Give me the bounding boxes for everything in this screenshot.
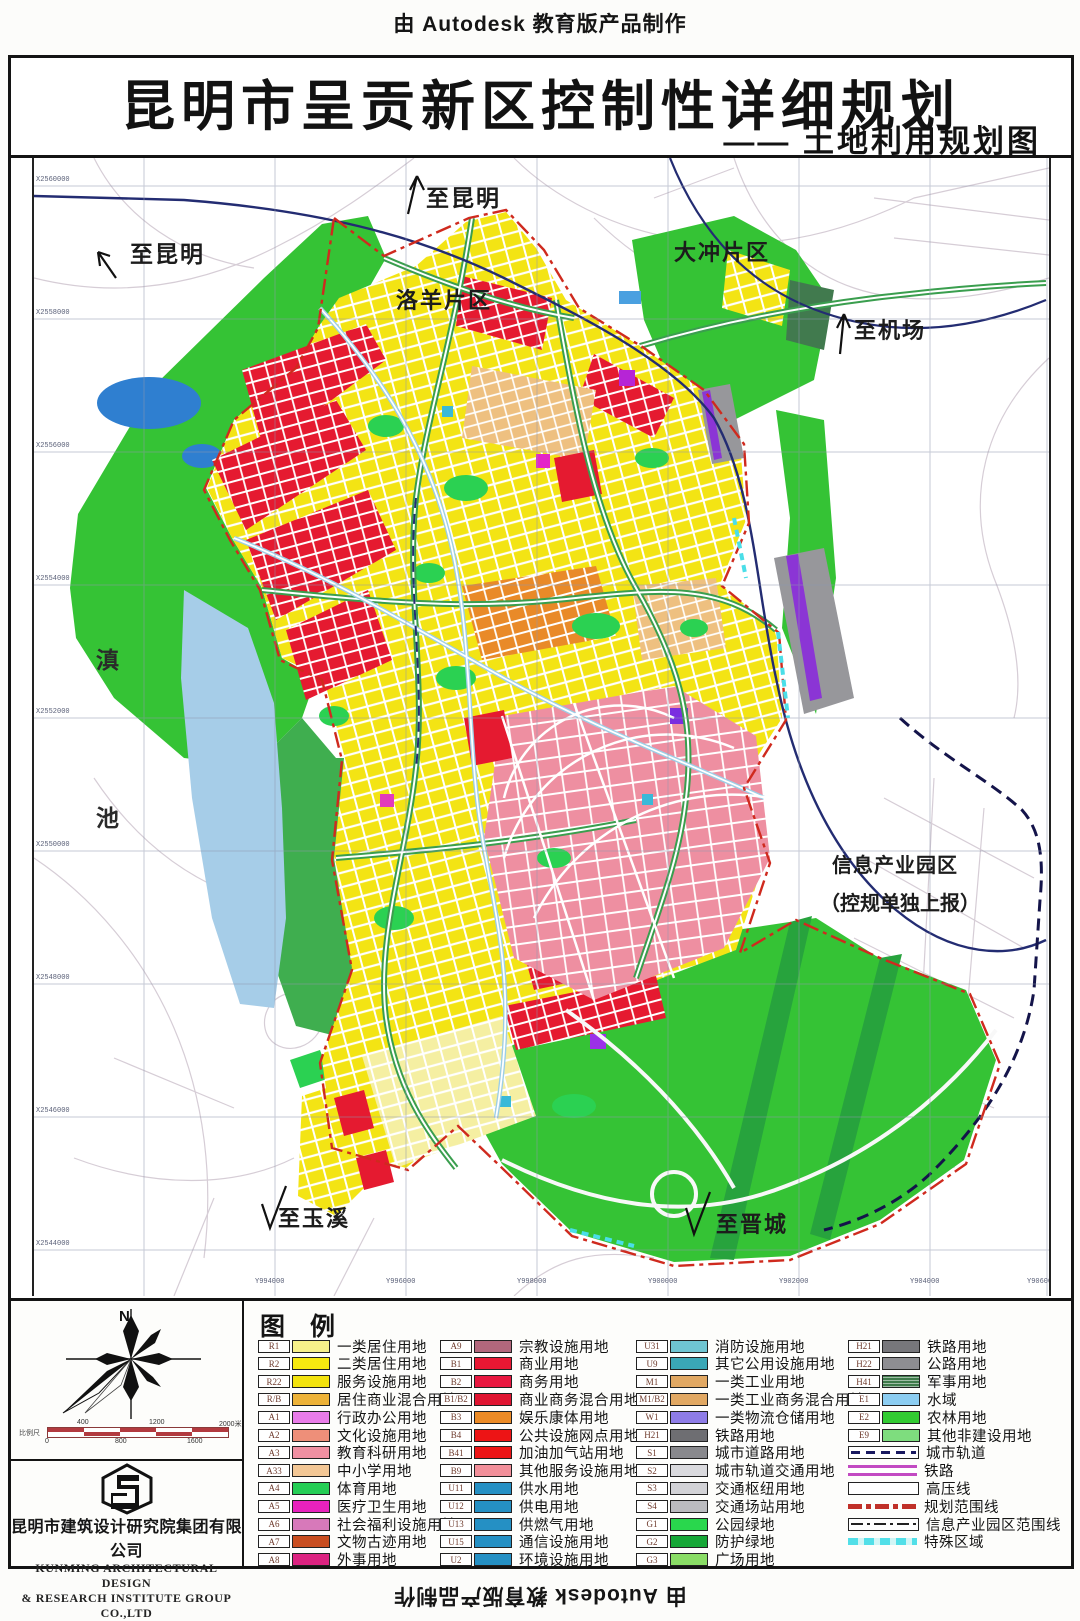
arrow-icon: [98, 252, 116, 278]
legend-item-code: S3: [636, 1482, 668, 1495]
legend-item-code: R1: [258, 1340, 290, 1353]
legend-item: G3广场用地: [636, 1553, 775, 1567]
legend-item-code: S2: [636, 1464, 668, 1477]
x-axis-label: Y994000: [255, 1278, 284, 1286]
legend-item-swatch: [670, 1340, 708, 1353]
legend-item: A4体育用地: [258, 1481, 397, 1495]
x-axis-label: Y996000: [386, 1278, 415, 1286]
legend-item-code: E1: [848, 1393, 880, 1406]
label-info-park-2: （控规单独上报）: [820, 891, 980, 915]
legend-item-code: G1: [636, 1518, 668, 1531]
y-axis-label: X2550000: [36, 841, 70, 849]
legend-item: U2环境设施用地: [440, 1553, 609, 1567]
top-credit: 由 Autodesk 教育版产品制作: [0, 8, 1080, 38]
legend-item-swatch: [292, 1500, 330, 1513]
legend-item-code: R/B: [258, 1393, 290, 1406]
company-name-en1: KUNMING ARCHITECTURAL DESIGN: [11, 1561, 242, 1591]
title-block: 昆明市呈贡新区控制性详细规划 —— 土地利用规划图: [11, 58, 1071, 158]
legend-item-code: U2: [440, 1553, 472, 1566]
company-name-en2: & RESEARCH INSTITUTE GROUP CO.,LTD: [11, 1591, 242, 1621]
x-axis-label: Y902000: [779, 1278, 808, 1286]
legend-item-code: B1/B2: [440, 1393, 472, 1406]
legend-item: B41加油加气站用地: [440, 1446, 624, 1460]
legend-item-swatch: [882, 1357, 920, 1370]
legend-item-code: H22: [848, 1357, 880, 1370]
legend-item: B4公共设施网点用地: [440, 1428, 639, 1442]
legend-item: B2商务用地: [440, 1375, 579, 1389]
legend-item: A6社会福利设施用地: [258, 1517, 457, 1531]
legend-item: A9宗教设施用地: [440, 1339, 609, 1353]
legend-item-code: H21: [848, 1340, 880, 1353]
legend-item-code: U31: [636, 1340, 668, 1353]
publisher-panel: 昆明市建筑设计研究院集团有限公司 KUNMING ARCHITECTURAL D…: [11, 1461, 242, 1566]
legend-item-swatch: [292, 1411, 330, 1424]
legend-item: E1水域: [848, 1392, 957, 1406]
legend-item-swatch: [474, 1429, 512, 1442]
legend-item-code: B3: [440, 1411, 472, 1424]
legend-item-swatch: [292, 1393, 330, 1406]
legend-item-code: B4: [440, 1429, 472, 1442]
legend-item-swatch: [882, 1429, 920, 1442]
legend-item-swatch: [474, 1464, 512, 1477]
legend-item-symbol: [848, 1482, 919, 1495]
legend-item-code: H21: [636, 1429, 668, 1442]
legend-item-code: U15: [440, 1535, 472, 1548]
legend-line-subway: [851, 1451, 916, 1454]
legend-item-swatch: [474, 1446, 512, 1459]
legend-item: H21铁路用地: [848, 1339, 987, 1353]
legend-item-code: A4: [258, 1482, 290, 1495]
legend-panel: 图 例 R1一类居住用地R2二类居住用地R22服务设施用地R/B居住商业混合用地…: [244, 1301, 1071, 1566]
scalebar-tick: 1200: [149, 1419, 165, 1426]
legend-item: S2城市轨道交通用地: [636, 1464, 835, 1478]
legend-item-swatch: [670, 1411, 708, 1424]
legend-item-swatch: [670, 1393, 708, 1406]
legend-item-swatch: [474, 1482, 512, 1495]
legend-item-swatch: [292, 1340, 330, 1353]
label-luoyang: 洛羊片区: [396, 288, 492, 313]
legend-item-code: A5: [258, 1500, 290, 1513]
legend-item-swatch: [474, 1411, 512, 1424]
legend-item-swatch: [292, 1446, 330, 1459]
legend-item-swatch: [474, 1393, 512, 1406]
legend-item-code: A33: [258, 1464, 290, 1477]
legend-item-code: A3: [258, 1446, 290, 1459]
label-dianchi-1: 滇: [96, 648, 119, 673]
legend-item-code: E2: [848, 1411, 880, 1424]
legend-item-swatch: [670, 1553, 708, 1566]
y-axis-label: X2556000: [36, 442, 70, 450]
legend-item-swatch: [474, 1535, 512, 1548]
legend-item-swatch: [292, 1535, 330, 1548]
legend-item-code: B1: [440, 1357, 472, 1370]
legend-item: A2文化设施用地: [258, 1428, 427, 1442]
legend-item: A8外事用地: [258, 1553, 397, 1567]
scalebar-label: 比例尺: [19, 1428, 40, 1438]
legend-item: H22公路用地: [848, 1357, 987, 1371]
legend-line-redline: [848, 1504, 917, 1509]
scalebar-tick: 800: [115, 1438, 127, 1445]
arrow-icon: [408, 176, 424, 214]
legend-item-code: R2: [258, 1357, 290, 1370]
legend-item: U11供水用地: [440, 1481, 579, 1495]
legend-item-swatch: [292, 1429, 330, 1442]
legend-item: B1商业用地: [440, 1357, 579, 1371]
legend-item: A3教育科研用地: [258, 1446, 427, 1460]
legend-item-swatch: [292, 1518, 330, 1531]
legend-item-symbol: [848, 1518, 919, 1531]
y-axis-label: X2552000: [36, 708, 70, 716]
legend-item-swatch: [670, 1535, 708, 1548]
legend-item-code: A1: [258, 1411, 290, 1424]
legend-item-label: 特殊区域: [924, 1531, 984, 1552]
legend-item-code: G3: [636, 1553, 668, 1566]
page-subtitle: —— 土地利用规划图: [723, 116, 1041, 161]
legend-item-code: U9: [636, 1357, 668, 1370]
legend-item: H21铁路用地: [636, 1428, 775, 1442]
scalebar-tick: 400: [77, 1419, 89, 1426]
legend-item: G1公园绿地: [636, 1517, 775, 1531]
legend-item: B1/B2商业商务混合用地: [440, 1392, 639, 1406]
legend-item: B3娱乐康体用地: [440, 1410, 609, 1424]
label-to-kunming-top: 至昆明: [426, 186, 501, 211]
legend-item-code: A6: [258, 1518, 290, 1531]
legend-item: A7文物古迹用地: [258, 1535, 427, 1549]
scalebar-tick: 1600: [187, 1438, 203, 1445]
legend-item-code: A9: [440, 1340, 472, 1353]
legend-item-code: G2: [636, 1535, 668, 1548]
legend-item: U9其它公用设施用地: [636, 1357, 835, 1371]
legend-item-label: 外事用地: [337, 1549, 397, 1570]
legend-item-swatch: [882, 1375, 920, 1388]
scalebar-tick: 0: [45, 1438, 49, 1445]
legend-item: U31消防设施用地: [636, 1339, 805, 1353]
legend-item-code: R22: [258, 1375, 290, 1388]
legend-item: B9其他服务设施用地: [440, 1464, 639, 1478]
legend-item: H41军事用地: [848, 1375, 987, 1389]
label-info-park-1: 信息产业园区: [832, 853, 958, 877]
x-axis-label: Y900000: [648, 1278, 677, 1286]
legend-item-swatch: [474, 1518, 512, 1531]
legend-item: G2防护绿地: [636, 1535, 775, 1549]
legend-item: 信息产业园区范围线: [848, 1517, 1061, 1531]
legend-item-code: H41: [848, 1375, 880, 1388]
legend-item: A33中小学用地: [258, 1464, 412, 1478]
legend-item-code: M1: [636, 1375, 668, 1388]
legend-item: E2农林用地: [848, 1410, 987, 1424]
legend-item: E9其他非建设用地: [848, 1428, 1032, 1442]
legend-item-code: A8: [258, 1553, 290, 1566]
legend-line-special: [848, 1538, 917, 1545]
legend-item-swatch: [292, 1464, 330, 1477]
x-axis-label: Y906000: [1027, 1278, 1051, 1286]
legend-item-swatch: [670, 1482, 708, 1495]
legend-item-symbol: [848, 1536, 917, 1547]
legend-item-code: M1/B2: [636, 1393, 668, 1406]
legend-item-swatch: [882, 1340, 920, 1353]
legend-line-infoline: [851, 1523, 916, 1526]
legend-item-symbol: [848, 1465, 917, 1476]
y-axis-label: X2560000: [36, 176, 70, 184]
legend-item-swatch: [882, 1393, 920, 1406]
legend-item: A5医疗卫生用地: [258, 1499, 427, 1513]
legend-item-swatch: [474, 1375, 512, 1388]
plan-sheet: 昆明市呈贡新区控制性详细规划 —— 土地利用规划图: [8, 55, 1074, 1569]
legend-item-symbol: [848, 1501, 917, 1512]
compass-box: N 比例尺 40012002: [11, 1301, 242, 1461]
compass-scale-panel: N 比例尺 40012002: [11, 1301, 244, 1566]
legend-item: A1行政办公用地: [258, 1410, 427, 1424]
legend-item: S1城市道路用地: [636, 1446, 805, 1460]
legend-item-swatch: [474, 1500, 512, 1513]
legend-item-swatch: [670, 1429, 708, 1442]
legend-item-code: B9: [440, 1464, 472, 1477]
legend-item: R22服务设施用地: [258, 1375, 427, 1389]
legend-item-swatch: [474, 1357, 512, 1370]
legend-item: U12供电用地: [440, 1499, 579, 1513]
legend-item: 铁路: [848, 1464, 954, 1478]
legend-item: U15通信设施用地: [440, 1535, 609, 1549]
legend-item-code: S4: [636, 1500, 668, 1513]
legend-item-swatch: [670, 1357, 708, 1370]
legend-item-code: B2: [440, 1375, 472, 1388]
label-to-airport: 至机场: [854, 318, 926, 343]
legend-item: 规划范围线: [848, 1499, 999, 1513]
legend-item-swatch: [292, 1375, 330, 1388]
legend-item-symbol: [848, 1446, 919, 1459]
legend-item-swatch: [474, 1340, 512, 1353]
legend-item-code: U11: [440, 1482, 472, 1495]
map-canvas-wrap: 至昆明 至昆明 大冲片区 洛羊片区 至机场 滇 池 信息产业园区 （控规单独上报…: [32, 158, 1051, 1296]
legend-item-code: U13: [440, 1518, 472, 1531]
legend-item: M1/B2一类工业商务混合用地: [636, 1392, 865, 1406]
label-to-kunming-left: 至昆明: [130, 242, 205, 267]
legend-item: 特殊区域: [848, 1535, 984, 1549]
legend-item-swatch: [670, 1518, 708, 1531]
legend-item-swatch: [474, 1553, 512, 1566]
legend-item-swatch: [292, 1482, 330, 1495]
legend-item-code: U12: [440, 1500, 472, 1513]
label-to-jincheng: 至晋城: [716, 1212, 788, 1237]
legend-item-label: 环境设施用地: [519, 1549, 609, 1570]
legend-item-swatch: [670, 1464, 708, 1477]
y-axis-label: X2554000: [36, 575, 70, 583]
legend-item-code: A2: [258, 1429, 290, 1442]
x-axis-label: Y904000: [910, 1278, 939, 1286]
legend-item-code: S1: [636, 1446, 668, 1459]
label-dachong: 大冲片区: [674, 240, 770, 265]
legend-item-code: E9: [848, 1429, 880, 1442]
label-dianchi-2: 池: [96, 806, 119, 831]
legend-item: W1一类物流仓储用地: [636, 1410, 835, 1424]
y-axis-label: X2558000: [36, 309, 70, 317]
company-logo-icon: [97, 1463, 157, 1515]
y-axis-label: X2548000: [36, 974, 70, 982]
legend-item: 城市轨道: [848, 1446, 986, 1460]
legend-item: M1一类工业用地: [636, 1375, 805, 1389]
legend-items: R1一类居住用地R2二类居住用地R22服务设施用地R/B居住商业混合用地A1行政…: [244, 1301, 1071, 1566]
legend-item: S4交通场站用地: [636, 1499, 805, 1513]
legend-item-code: W1: [636, 1411, 668, 1424]
legend-item-swatch: [670, 1446, 708, 1459]
x-axis-label: Y998000: [517, 1278, 546, 1286]
label-to-yuxi: 至玉溪: [278, 1206, 350, 1231]
legend-item-swatch: [292, 1553, 330, 1566]
legend-item: U13供燃气用地: [440, 1517, 594, 1531]
legend-item-code: B41: [440, 1446, 472, 1459]
legend-line-railline: [848, 1465, 917, 1476]
y-axis-label: X2544000: [36, 1240, 70, 1248]
landuse-map: 至昆明 至昆明 大冲片区 洛羊片区 至机场 滇 池 信息产业园区 （控规单独上报…: [34, 158, 1049, 1296]
company-name-cn: 昆明市建筑设计研究院集团有限公司: [11, 1513, 242, 1561]
legend-item: R1一类居住用地: [258, 1339, 427, 1353]
scalebar-tick: 2000米: [219, 1419, 242, 1429]
legend-item-swatch: [670, 1500, 708, 1513]
legend-item-swatch: [670, 1375, 708, 1388]
legend-item: R2二类居住用地: [258, 1357, 427, 1371]
legend-item-code: A7: [258, 1535, 290, 1548]
legend-item: R/B居住商业混合用地: [258, 1392, 457, 1406]
legend-item-label: 广场用地: [715, 1549, 775, 1570]
legend-item-swatch: [882, 1411, 920, 1424]
legend-item-swatch: [292, 1357, 330, 1370]
legend-strip: N 比例尺 40012002: [11, 1298, 1071, 1566]
y-axis-label: X2546000: [36, 1107, 70, 1115]
legend-item: S3交通枢纽用地: [636, 1481, 805, 1495]
legend-item: 高压线: [848, 1481, 971, 1495]
scalebar: [47, 1427, 229, 1438]
